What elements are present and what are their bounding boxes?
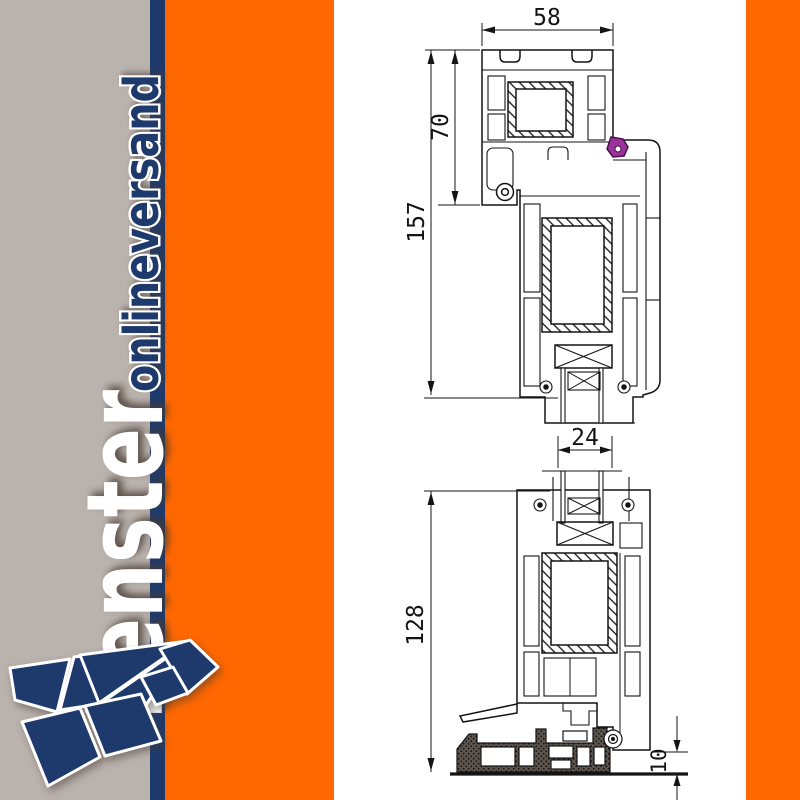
fenster-onlineversand-logo-icon (0, 0, 800, 800)
product-image-window-profile: { "page": { "type": "product-image", "de… (0, 0, 800, 800)
logo-panes (10, 640, 218, 786)
